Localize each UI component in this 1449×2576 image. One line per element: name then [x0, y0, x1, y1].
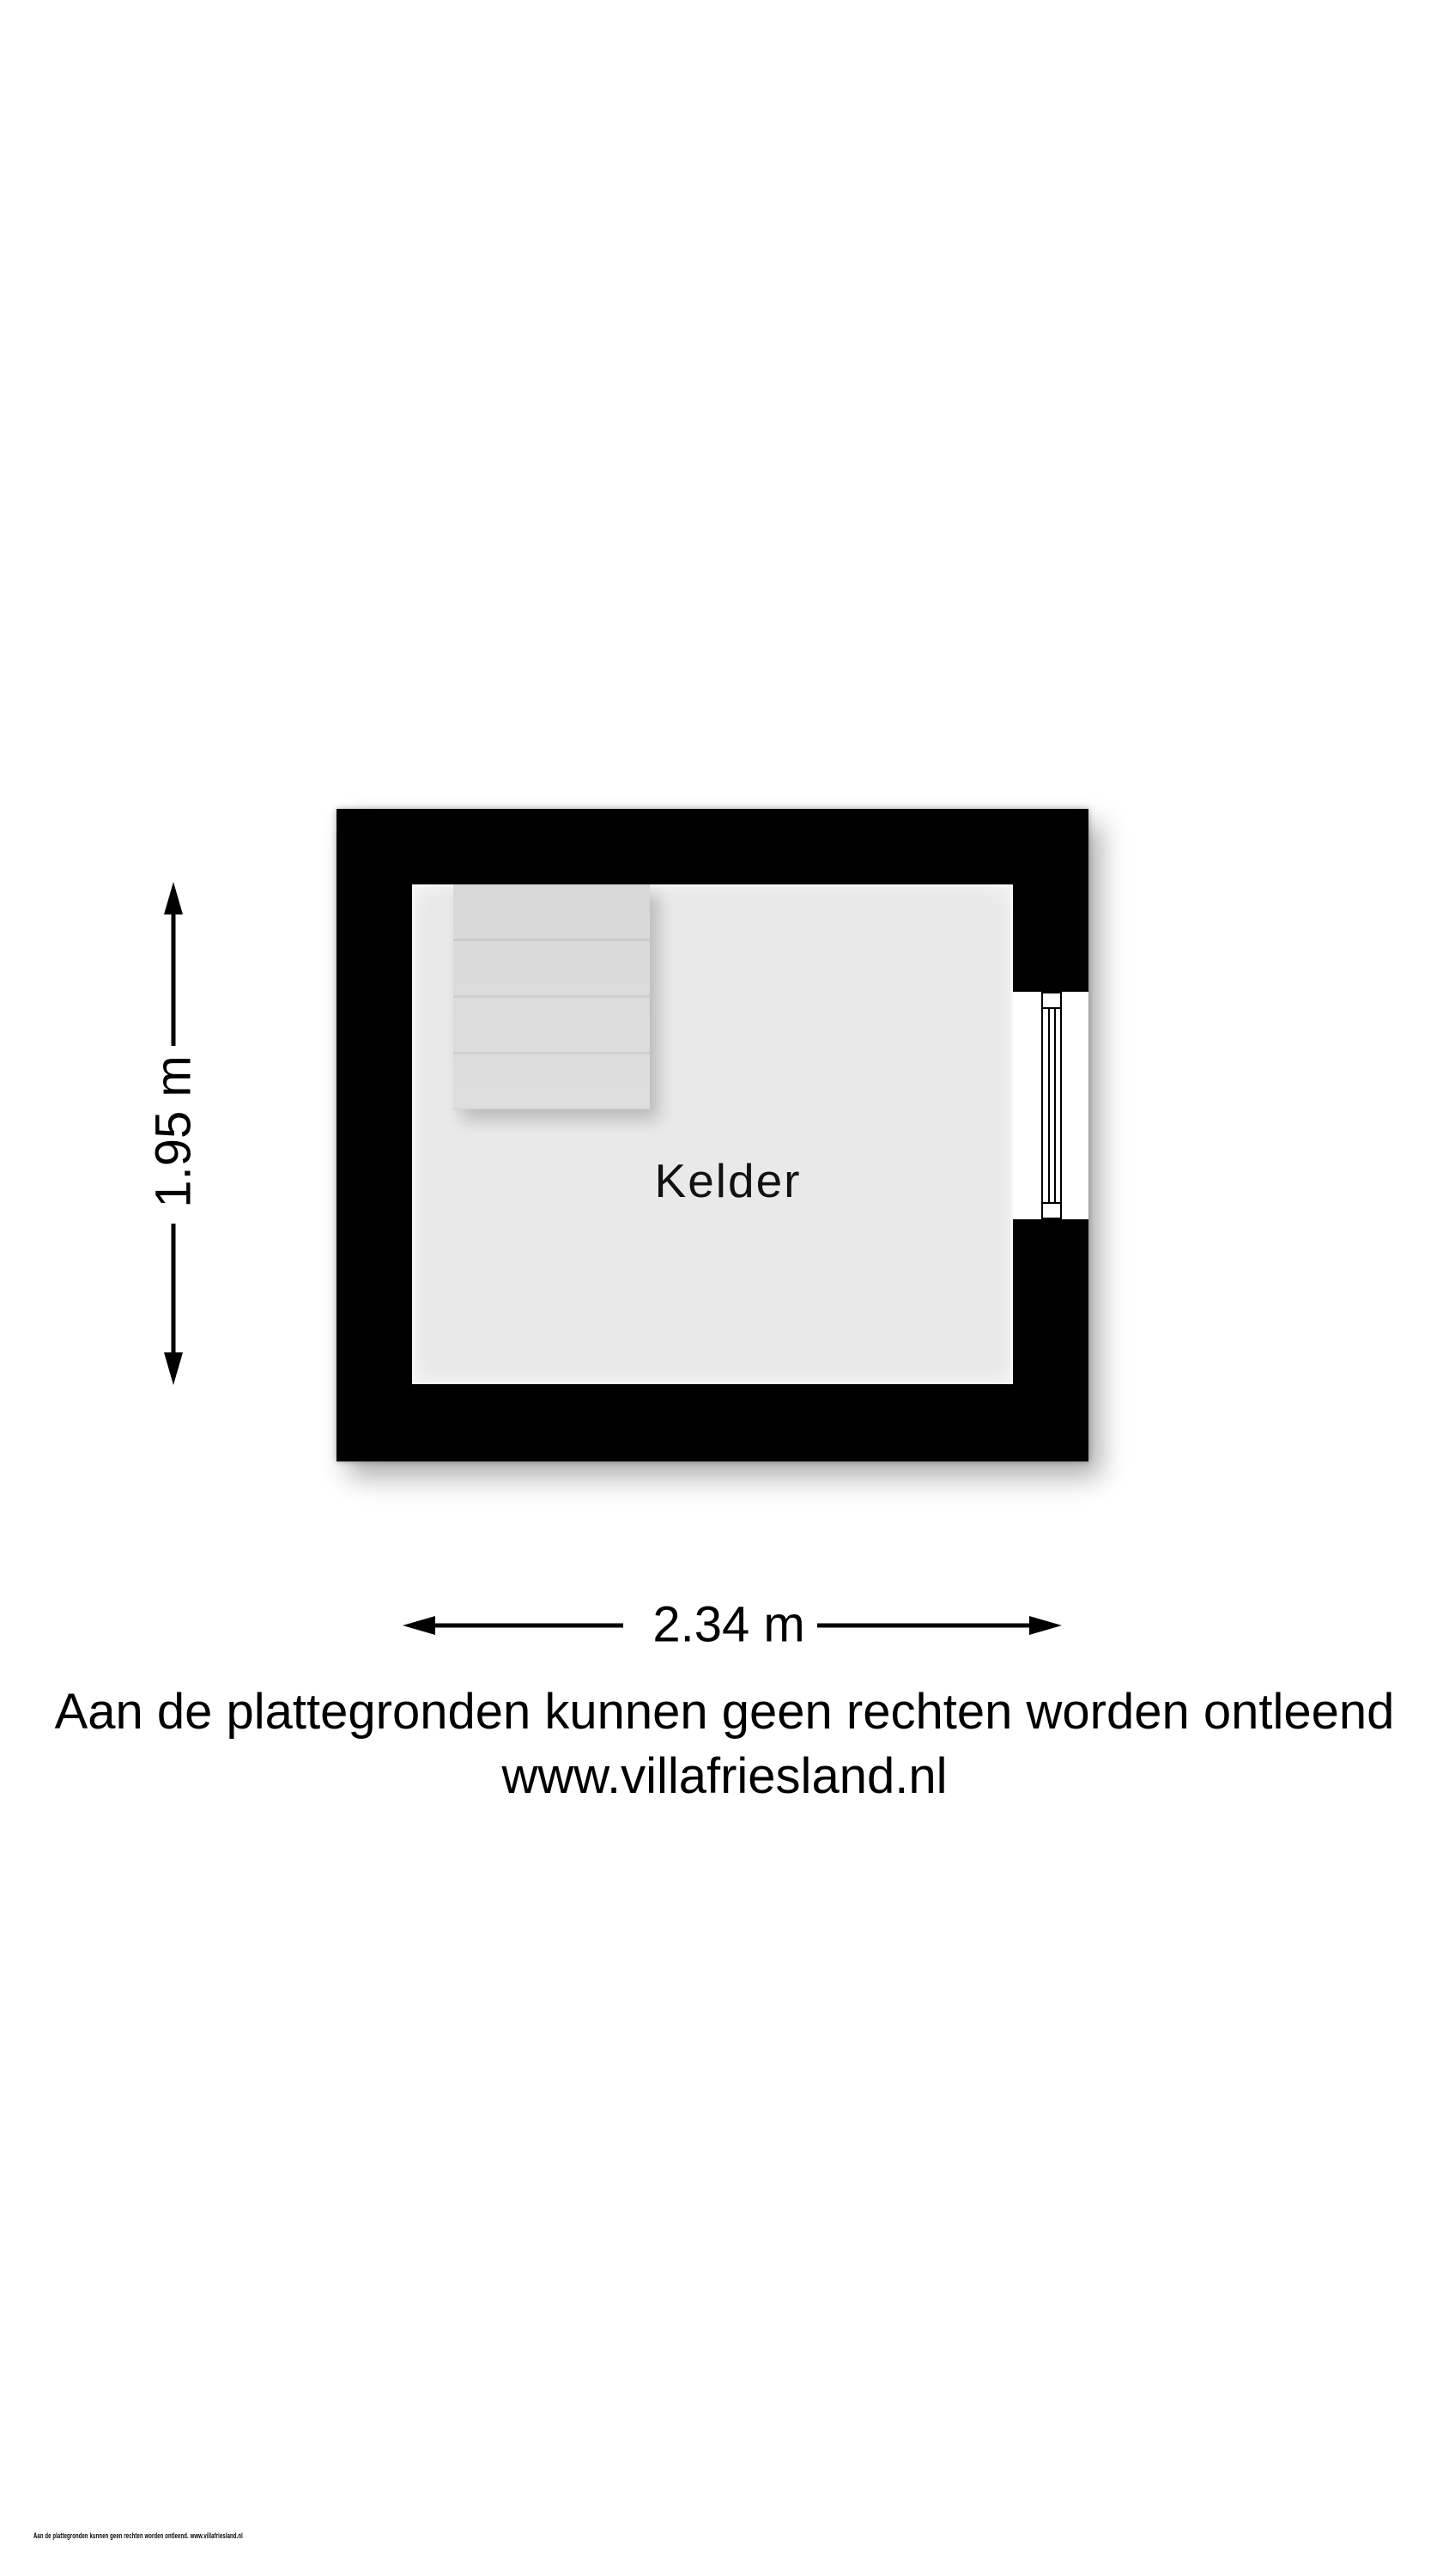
window-glass-line	[1054, 1009, 1056, 1202]
website-url: www.villafriesland.nl	[0, 1744, 1449, 1808]
width-dimension-label: 2.34 m	[642, 1596, 815, 1654]
stairs	[453, 884, 650, 1109]
height-dimension-label: 1.95 m	[145, 1055, 203, 1207]
room-label: Kelder	[655, 1153, 802, 1208]
fineprint: Aan de plattegronden kunnen geen rechten…	[33, 2531, 243, 2540]
window-sill-bottom	[1043, 1202, 1060, 1204]
window-glass-line	[1048, 1009, 1050, 1202]
window-frame	[1041, 992, 1062, 1219]
window-opening	[1013, 992, 1088, 1219]
disclaimer: Aan de plattegronden kunnen geen rechten…	[0, 1680, 1449, 1808]
disclaimer-line1: Aan de plattegronden kunnen geen rechten…	[0, 1680, 1449, 1744]
window-sill-top	[1043, 1007, 1060, 1009]
floorplan-page: Kelder 1.95 m 2.34 m Aan de plattegronde…	[0, 0, 1449, 2576]
floorplan-canvas: Kelder	[336, 809, 1088, 1461]
